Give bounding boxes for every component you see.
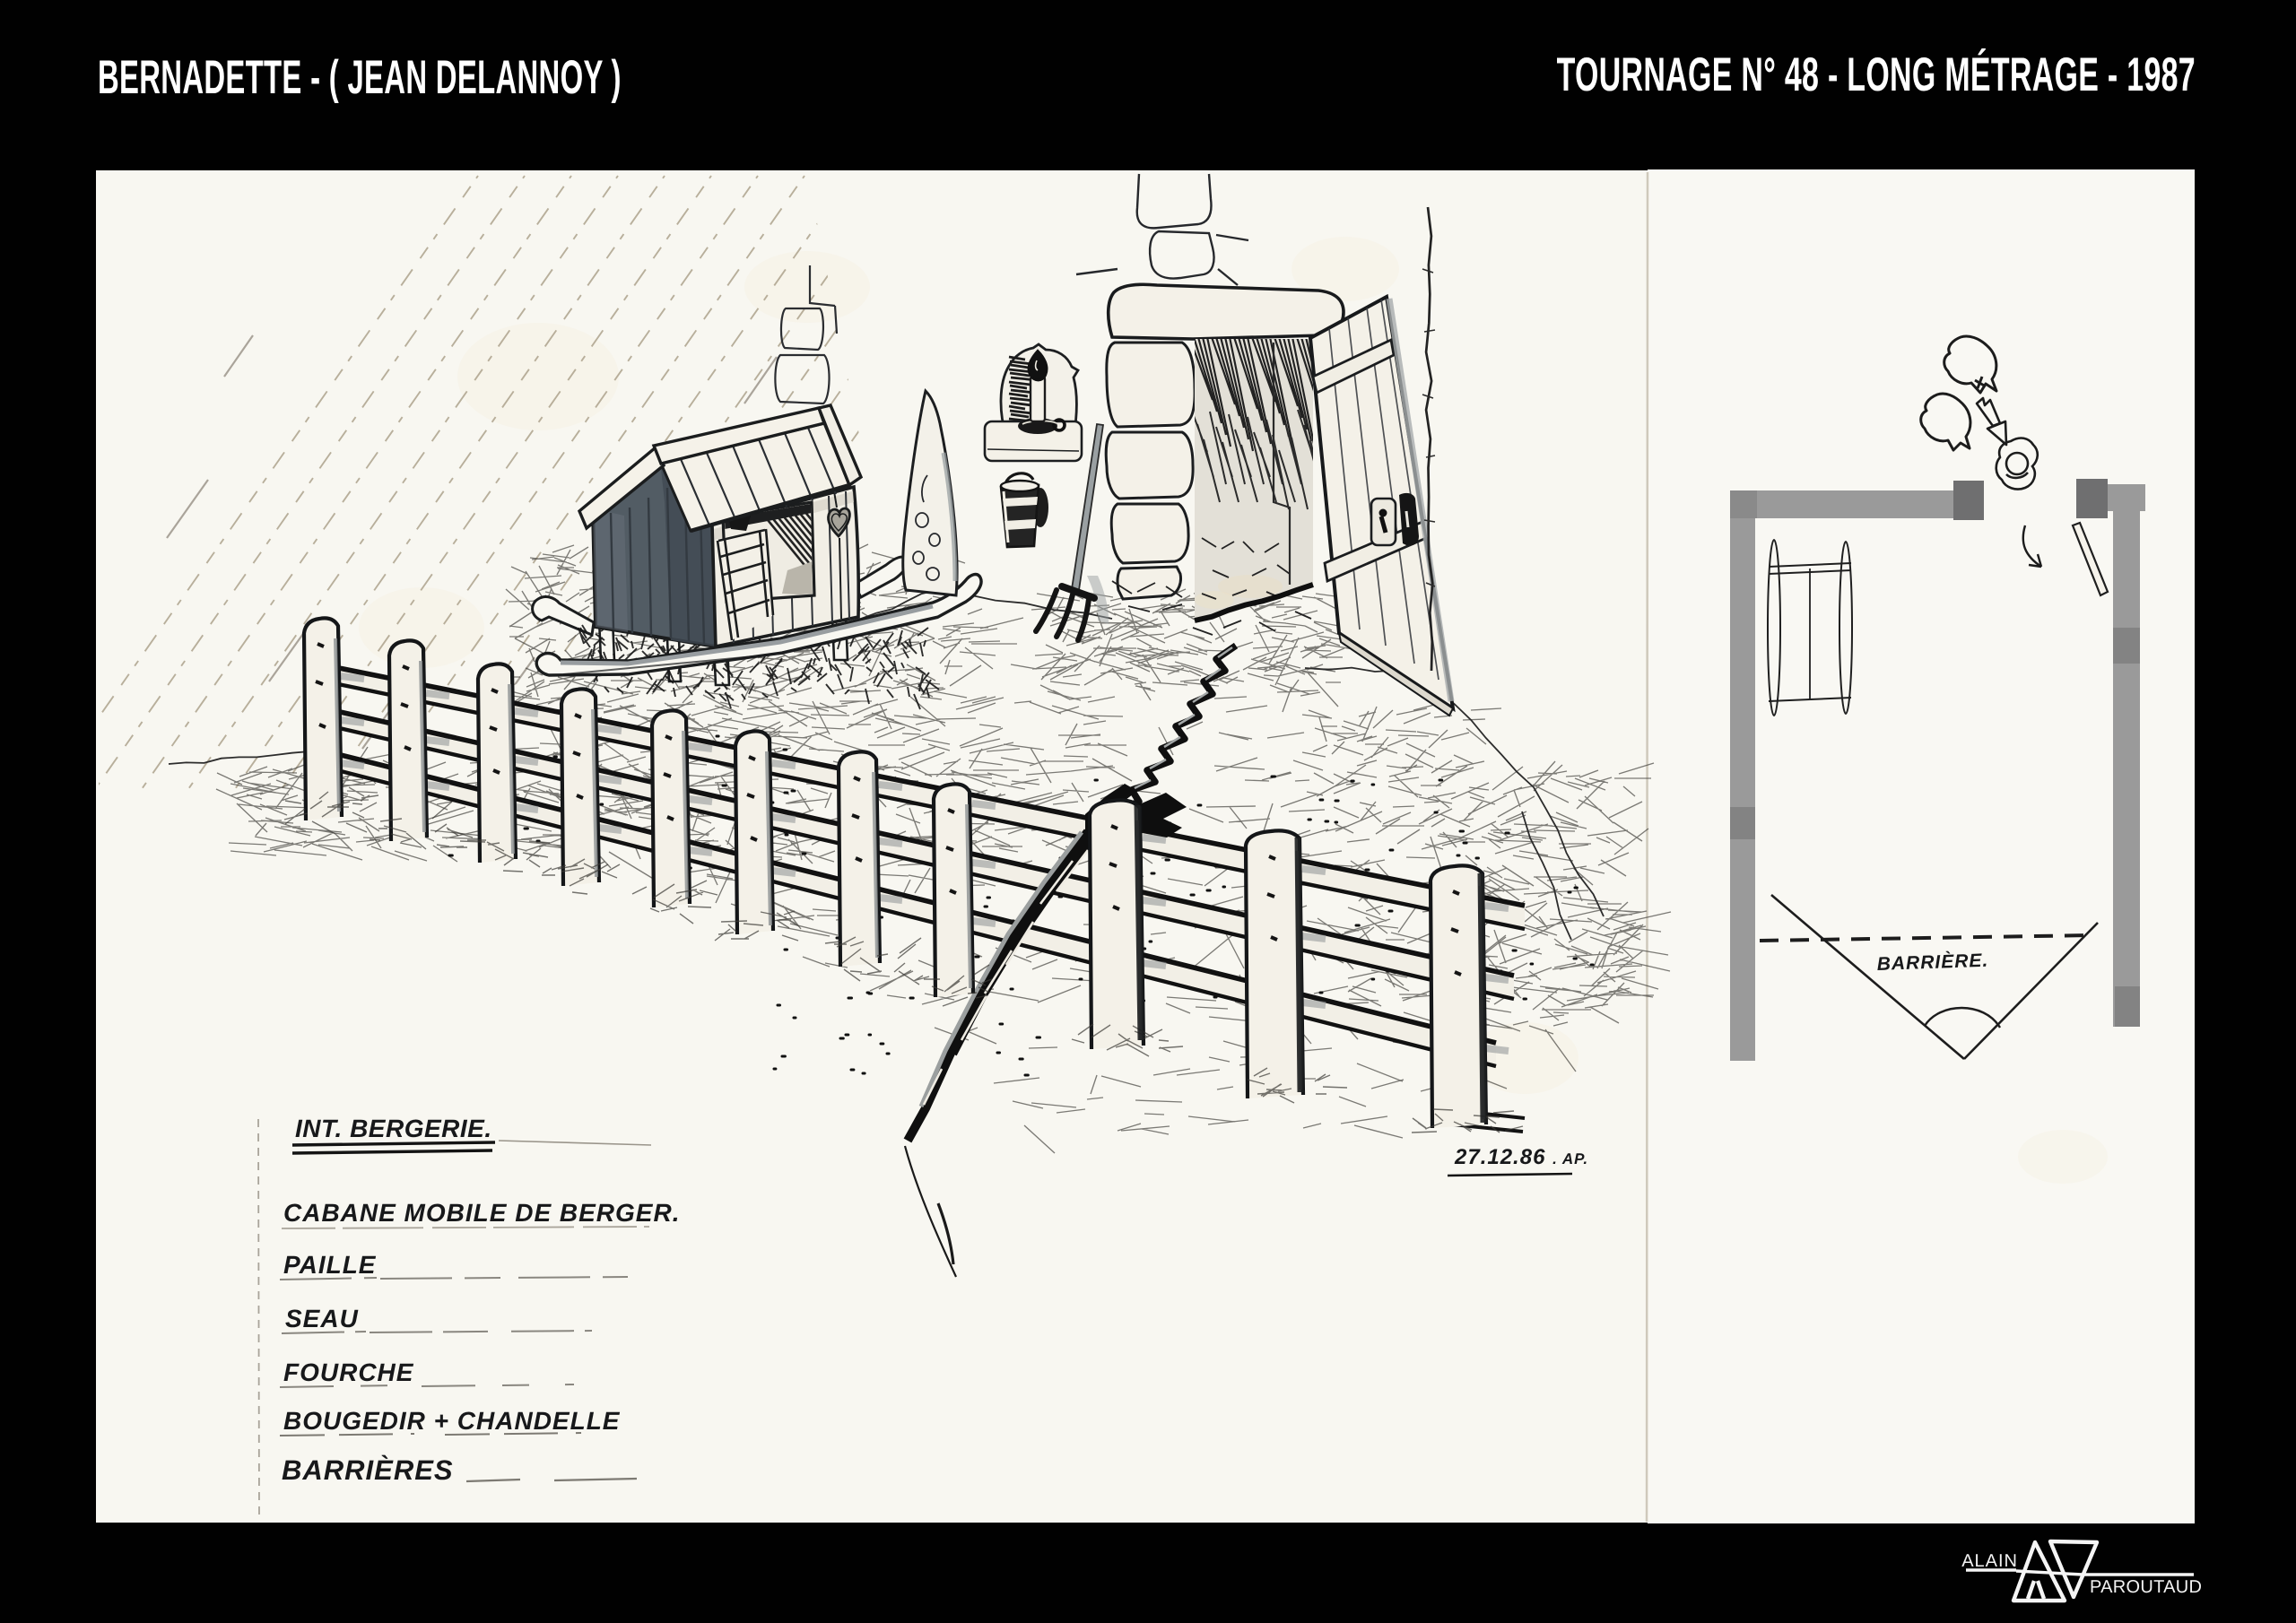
svg-text:FOURCHE: FOURCHE [283, 1358, 414, 1386]
svg-text:PAILLE: PAILLE [283, 1251, 377, 1279]
svg-text:SEAU: SEAU [285, 1305, 359, 1332]
svg-text:BARRIÈRES: BARRIÈRES [282, 1454, 454, 1486]
svg-text:BOUGEDIR + CHANDELLE: BOUGEDIR + CHANDELLE [283, 1407, 621, 1435]
svg-text:PAROUTAUD: PAROUTAUD [2090, 1577, 2202, 1597]
svg-text:BARRIÈRE.: BARRIÈRE. [1876, 950, 1988, 975]
svg-text:CABANE MOBILE DE BERGER.: CABANE MOBILE DE BERGER. [283, 1199, 680, 1227]
svg-text:BERNADETTE - ( JEAN DELANNOY ): BERNADETTE - ( JEAN DELANNOY ) [98, 51, 622, 104]
svg-text:ALAIN: ALAIN [1961, 1551, 2018, 1571]
svg-text:TOURNAGE N° 48 - LONG MÉTRAGE: TOURNAGE N° 48 - LONG MÉTRAGE - 1987 [1557, 48, 2196, 101]
svg-text:INT. BERGERIE.: INT. BERGERIE. [295, 1115, 492, 1142]
